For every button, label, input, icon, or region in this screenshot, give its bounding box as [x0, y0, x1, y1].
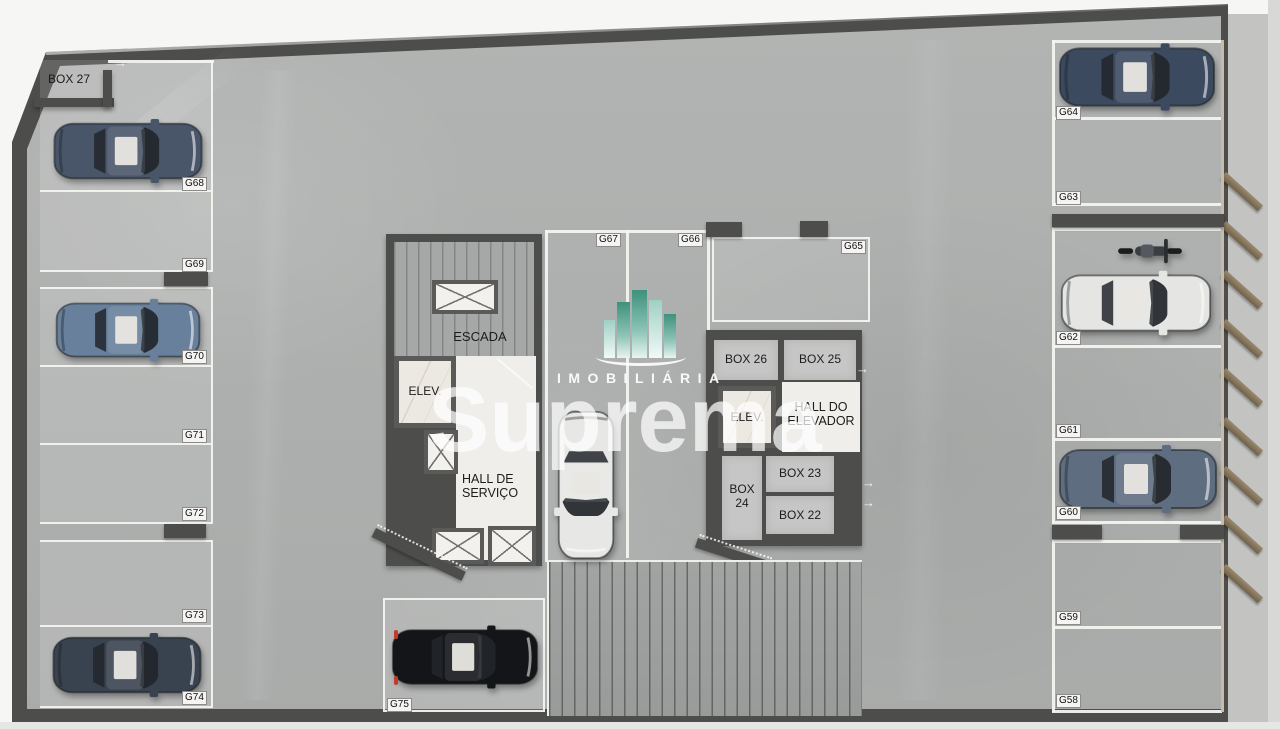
right-edge-line [1221, 40, 1224, 712]
box25-label: BOX 25 [784, 352, 856, 366]
spot-label-g70: G70 [182, 350, 207, 364]
wall-segment [1052, 214, 1224, 227]
box27-wall [34, 98, 114, 107]
hall-servico-label: HALL DE SERVIÇO [462, 472, 528, 500]
car-g74 [50, 632, 204, 703]
column-pillar [164, 524, 206, 538]
stall-line [1052, 710, 1222, 713]
stair-void-shaft [432, 280, 498, 314]
car-g62 [1060, 268, 1212, 343]
stall-line [1052, 540, 1055, 712]
spot-label-g75: G75 [387, 698, 412, 712]
box26-label: BOX 26 [714, 352, 778, 366]
spot-label-g66: G66 [678, 233, 703, 247]
spot-label-g68: G68 [182, 177, 207, 191]
car-g75 [391, 622, 539, 697]
taillight [394, 676, 398, 685]
spot-label-g73: G73 [182, 609, 207, 623]
ventilation-shaft [424, 430, 458, 474]
ramp [547, 560, 862, 716]
door-arrow-icon: → [862, 476, 875, 489]
column-pillar [164, 272, 208, 286]
spot-label-g74: G74 [182, 691, 207, 705]
box24-label: BOX 24 [724, 482, 760, 510]
exterior-side-band [1228, 14, 1268, 722]
box27-wall [103, 70, 112, 107]
spot-label-g59: G59 [1056, 611, 1081, 625]
door-arrow-icon: → [862, 496, 875, 509]
motorcycle-g62 [1112, 236, 1188, 271]
spot-label-g62: G62 [1056, 331, 1081, 345]
stall-line [1052, 626, 1222, 629]
garage-floor-plan: BOX 27 → G68 G69 G70 G71 G72 G73 G74 ESC… [0, 0, 1280, 729]
social-elevator-label: ELEV. [720, 410, 774, 424]
stall-line [707, 230, 710, 332]
exterior-edge-band [1268, 0, 1280, 729]
ventilation-shaft [488, 526, 536, 566]
spot-label-g63: G63 [1056, 191, 1081, 205]
column-pillar [1052, 525, 1102, 539]
spot-label-g58: G58 [1056, 694, 1081, 708]
stall-line [1052, 345, 1222, 348]
column-pillar [800, 221, 828, 237]
box27-label: BOX 27 [48, 72, 104, 86]
stall-line [1052, 228, 1222, 231]
spot-label-g65: G65 [841, 240, 866, 254]
car-g60 [1058, 444, 1218, 519]
service-elevator-label: ELEV. [396, 384, 454, 398]
exterior-bottom-band [0, 722, 1280, 729]
escada-label: ESCADA [428, 330, 532, 344]
spot-label-g72: G72 [182, 507, 207, 521]
car-g67 [511, 448, 661, 527]
spot-label-g60: G60 [1056, 506, 1081, 520]
column-pillar [1180, 525, 1224, 539]
stall-line [1052, 521, 1222, 524]
stall-line [1052, 228, 1055, 523]
car-g64 [1058, 42, 1216, 117]
column-pillar [706, 222, 742, 237]
entry-arrow-icon: → [114, 56, 127, 69]
stall-line [1052, 438, 1222, 441]
spot-label-g69: G69 [182, 258, 207, 272]
stall-line [1052, 40, 1055, 206]
box23-label: BOX 23 [766, 466, 834, 480]
box22-label: BOX 22 [766, 508, 834, 522]
spot-label-g61: G61 [1056, 424, 1081, 438]
spot-label-g64: G64 [1056, 106, 1081, 120]
taillight [394, 630, 398, 639]
hall-elevador-label: HALL DO ELEVADOR [784, 400, 858, 428]
stall-line [1052, 540, 1222, 543]
door-arrow-icon: → [856, 362, 869, 375]
spot-label-g67: G67 [596, 233, 621, 247]
spot-label-g71: G71 [182, 429, 207, 443]
